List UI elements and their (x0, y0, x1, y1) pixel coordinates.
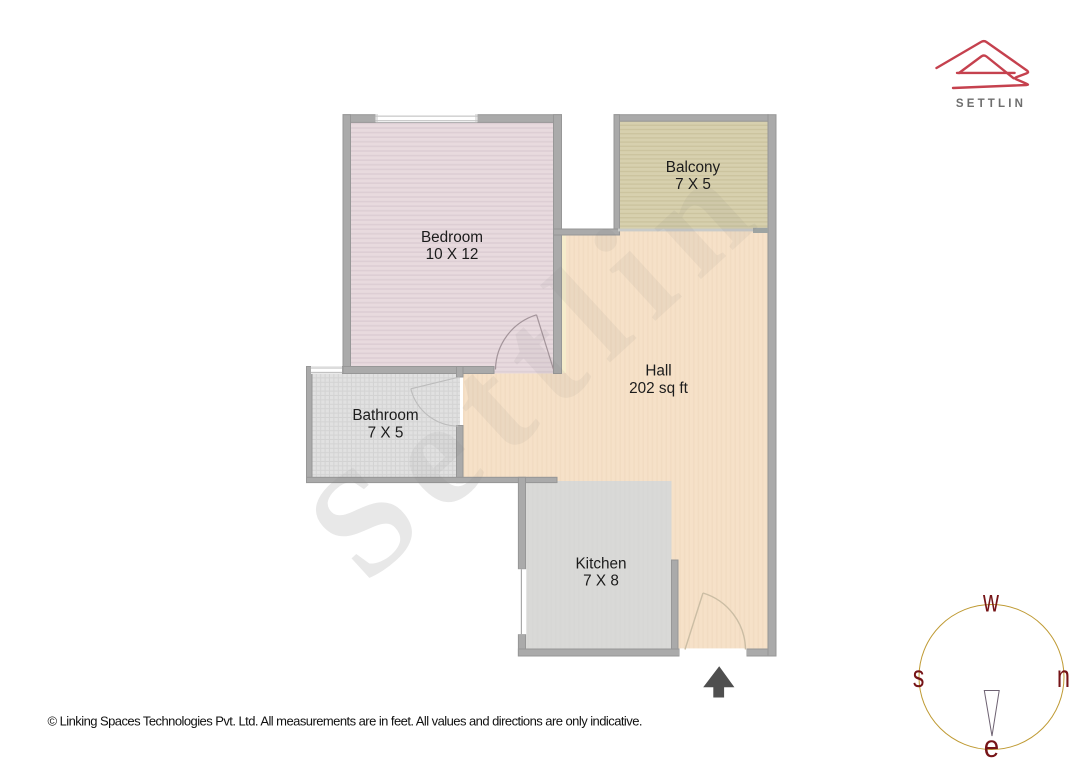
svg-text:Bathroom: Bathroom (352, 407, 418, 424)
svg-text:Bedroom: Bedroom (421, 229, 483, 246)
svg-text:© Linking Spaces Technologies: © Linking Spaces Technologies Pvt. Ltd. … (48, 714, 642, 729)
svg-text:s: s (913, 659, 925, 694)
svg-text:Kitchen: Kitchen (575, 556, 626, 573)
svg-text:SETTLIN: SETTLIN (956, 98, 1026, 110)
svg-text:202 sq ft: 202 sq ft (629, 380, 688, 397)
svg-text:n: n (1057, 659, 1070, 694)
svg-text:w: w (982, 583, 999, 619)
svg-text:Balcony: Balcony (666, 159, 721, 176)
svg-text:10 X 12: 10 X 12 (426, 246, 479, 263)
svg-text:Hall: Hall (645, 363, 671, 380)
svg-text:e: e (984, 729, 999, 764)
svg-text:7 X 5: 7 X 5 (675, 176, 711, 193)
svg-text:7 X 8: 7 X 8 (583, 573, 619, 590)
svg-text:7 X 5: 7 X 5 (368, 425, 404, 442)
